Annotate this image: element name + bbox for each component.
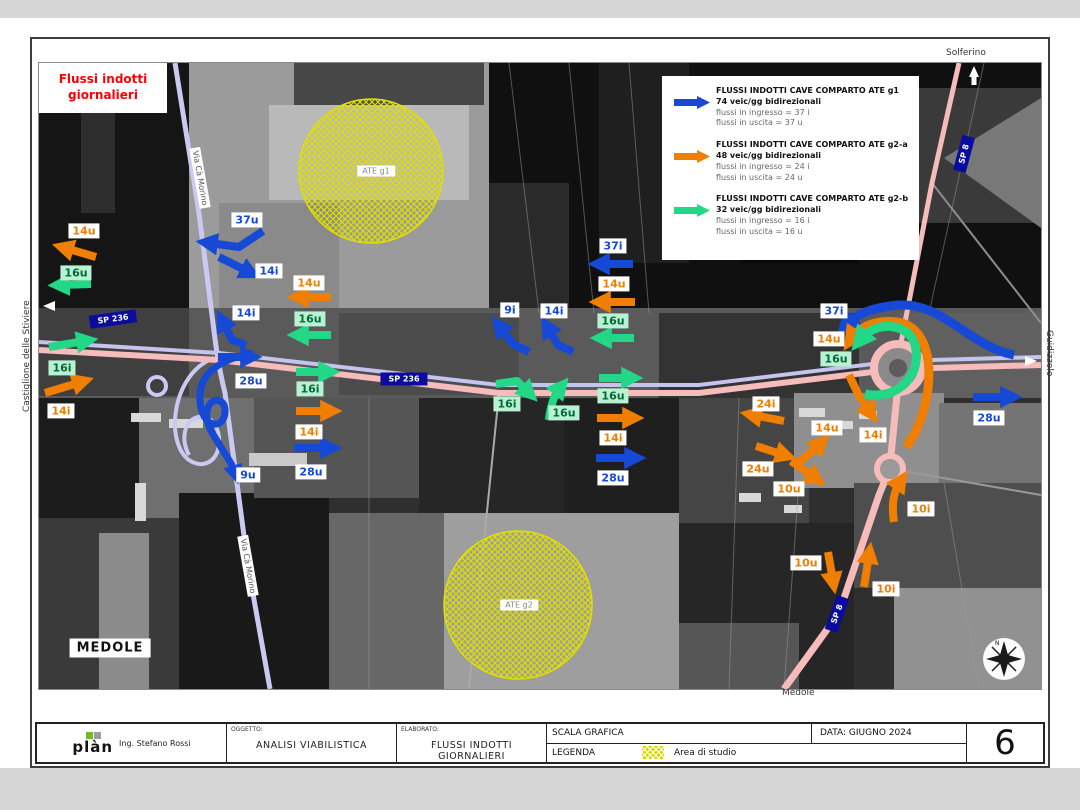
flow-label: 14i bbox=[255, 263, 282, 278]
legend-title: FLUSSI INDOTTI CAVE COMPARTO ATE g1 bbox=[716, 86, 899, 97]
flow-label: 16u bbox=[597, 388, 628, 403]
place-label-castiglione: Castiglione delle Stiviere bbox=[22, 232, 32, 412]
legend-title: FLUSSI INDOTTI CAVE COMPARTO ATE g2-a bbox=[716, 140, 908, 151]
flow-label: 37i bbox=[820, 303, 847, 318]
flow-label: 28u bbox=[295, 464, 326, 479]
elaborato-label: ELABORATO: bbox=[401, 726, 439, 733]
legend-subtitle: 32 veic/gg bidirezionali bbox=[716, 205, 908, 216]
flow-label: 16u bbox=[60, 265, 91, 280]
flow-label: 10i bbox=[872, 581, 899, 596]
flows-legend: FLUSSI INDOTTI CAVE COMPARTO ATE g1 74 v… bbox=[662, 76, 919, 260]
flow-label: 14u bbox=[68, 223, 99, 238]
flow-label: 37u bbox=[231, 212, 262, 227]
oggetto-label: OGGETTO: bbox=[231, 726, 263, 733]
place-label-medole-bottom: Medole bbox=[782, 688, 815, 698]
flow-label: 16u bbox=[548, 405, 579, 420]
logo-word: plàn bbox=[72, 740, 113, 755]
legend-entry-ate-g2a: FLUSSI INDOTTI CAVE COMPARTO ATE g2-a 48… bbox=[672, 140, 911, 183]
legend-line-out: flussi in uscita = 24 u bbox=[716, 173, 908, 184]
map-title-line2: giornalieri bbox=[59, 88, 148, 104]
place-label-guidizzolo: Guidizzolo bbox=[1044, 330, 1054, 450]
study-area-swatch-icon bbox=[642, 746, 664, 759]
flow-label: 14i bbox=[599, 430, 626, 445]
legend-entry-ate-g2b: FLUSSI INDOTTI CAVE COMPARTO ATE g2-b 32… bbox=[672, 194, 911, 237]
legend-line-out: flussi in uscita = 16 u bbox=[716, 227, 908, 238]
flow-label: 28u bbox=[597, 470, 628, 485]
legend-line-in: flussi in ingresso = 24 i bbox=[716, 162, 908, 173]
flow-label: 14i bbox=[232, 305, 259, 320]
flow-label: 14u bbox=[293, 275, 324, 290]
engineer-name: Ing. Stefano Rossi bbox=[119, 739, 191, 748]
scala-grafica-label: SCALA GRAFICA bbox=[547, 724, 812, 743]
legend-line-out: flussi in uscita = 37 u bbox=[716, 118, 899, 129]
orange-arrow-icon bbox=[672, 140, 716, 183]
oggetto-value: ANALISI VIABILISTICA bbox=[227, 740, 396, 751]
flow-label: 24i bbox=[752, 396, 779, 411]
oggetto-cell: OGGETTO: ANALISI VIABILISTICA bbox=[227, 724, 397, 762]
company-cell: plàn Ing. Stefano Rossi bbox=[37, 724, 227, 762]
ate-g1-label: ATE g1 bbox=[357, 166, 395, 177]
legenda-item: Area di studio bbox=[674, 748, 736, 758]
compass-rose-icon: N bbox=[983, 638, 1025, 680]
flow-label: 9u bbox=[236, 467, 260, 482]
legenda-label: LEGENDA bbox=[547, 748, 642, 758]
legend-line-in: flussi in ingresso = 16 i bbox=[716, 216, 908, 227]
green-arrow-icon bbox=[672, 194, 716, 237]
flow-label: 14u bbox=[598, 276, 629, 291]
flow-label: 16i bbox=[493, 396, 520, 411]
flow-label: 14u bbox=[813, 331, 844, 346]
flow-label: 14u bbox=[811, 420, 842, 435]
place-label-solferino: Solferino bbox=[946, 48, 986, 58]
scale-legend-cell: SCALA GRAFICA DATA: GIUGNO 2024 LEGENDA … bbox=[547, 724, 967, 762]
legend-entry-ate-g1: FLUSSI INDOTTI CAVE COMPARTO ATE g1 74 v… bbox=[672, 86, 911, 129]
flow-label: 14i bbox=[47, 403, 74, 418]
flow-label: 14i bbox=[295, 424, 322, 439]
flow-label: 28u bbox=[973, 410, 1004, 425]
elaborato-cell: ELABORATO: FLUSSI INDOTTI GIORNALIERI bbox=[397, 724, 547, 762]
ate-g2-label: ATE g2 bbox=[500, 600, 538, 611]
date-label: DATA: GIUGNO 2024 bbox=[812, 724, 966, 743]
flow-label: 14i bbox=[540, 303, 567, 318]
flow-label: 37i bbox=[599, 238, 626, 253]
drawing-sheet: Castiglione delle Stiviere Solferino Gui… bbox=[0, 0, 1080, 810]
legend-subtitle: 48 veic/gg bidirezionali bbox=[716, 151, 908, 162]
flow-label: 10u bbox=[790, 555, 821, 570]
flow-label: 14i bbox=[859, 427, 886, 442]
aerial-map: N Flussi indotti giornalieri FLUSSI INDO… bbox=[38, 62, 1042, 690]
legend-title: FLUSSI INDOTTI CAVE COMPARTO ATE g2-b bbox=[716, 194, 908, 205]
flow-label: 16u bbox=[597, 313, 628, 328]
sheet-number: 6 bbox=[967, 724, 1043, 762]
compass-north-letter: N bbox=[995, 640, 1000, 647]
legend-line-in: flussi in ingresso = 37 i bbox=[716, 108, 899, 119]
map-title-box: Flussi indotti giornalieri bbox=[39, 63, 167, 113]
blue-arrow-icon bbox=[672, 86, 716, 129]
flow-label: 24u bbox=[742, 461, 773, 476]
flow-label: 28u bbox=[235, 373, 266, 388]
flow-label: 16i bbox=[296, 381, 323, 396]
map-title-line1: Flussi indotti bbox=[59, 72, 148, 88]
road-sign-sp236: SP 236 bbox=[380, 373, 427, 386]
flow-label: 10i bbox=[907, 501, 934, 516]
title-block: plàn Ing. Stefano Rossi OGGETTO: ANALISI… bbox=[35, 722, 1045, 764]
elaborato-value: FLUSSI INDOTTI GIORNALIERI bbox=[397, 740, 546, 762]
town-label-medole: MEDOLE bbox=[70, 639, 151, 658]
plan-logo: plàn bbox=[72, 732, 113, 755]
flow-label: 9i bbox=[500, 302, 519, 317]
legend-subtitle: 74 veic/gg bidirezionali bbox=[716, 97, 899, 108]
flow-label: 16i bbox=[48, 360, 75, 375]
flow-label: 10u bbox=[773, 481, 804, 496]
flow-label: 16u bbox=[820, 351, 851, 366]
flow-label: 16u bbox=[294, 311, 325, 326]
